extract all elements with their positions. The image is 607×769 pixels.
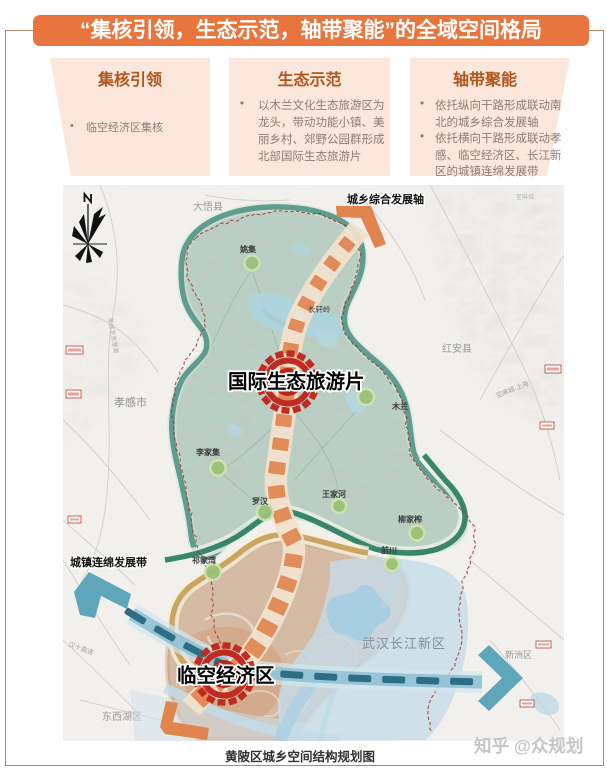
svg-text:红安县: 红安县 — [442, 342, 472, 355]
svg-text:临空经济区: 临空经济区 — [177, 664, 275, 687]
svg-text:武汉长江新区: 武汉长江新区 — [362, 636, 446, 651]
svg-text:国际生态旅游片: 国际生态旅游片 — [228, 370, 365, 393]
svg-text:姚集: 姚集 — [239, 244, 257, 254]
svg-text:大悟县: 大悟县 — [193, 200, 223, 213]
svg-text:前川: 前川 — [381, 545, 397, 555]
svg-text:城镇连绵发展带: 城镇连绵发展带 — [70, 555, 147, 569]
svg-text:新洲区: 新洲区 — [505, 649, 532, 660]
svg-text:罗汉: 罗汉 — [252, 496, 269, 506]
svg-text:木兰: 木兰 — [391, 401, 408, 411]
svg-text:柳家榨: 柳家榨 — [398, 514, 422, 524]
svg-text:李家集: 李家集 — [195, 447, 221, 457]
svg-text:祁家湾: 祁家湾 — [192, 555, 216, 565]
svg-text:城乡综合发展轴: 城乡综合发展轴 — [347, 192, 424, 206]
svg-text:孝感市: 孝感市 — [114, 395, 147, 409]
svg-text:至麻城: 至麻城 — [516, 193, 534, 201]
svg-text:长轩岭: 长轩岭 — [308, 304, 331, 314]
svg-text:王家河: 王家河 — [322, 489, 346, 499]
